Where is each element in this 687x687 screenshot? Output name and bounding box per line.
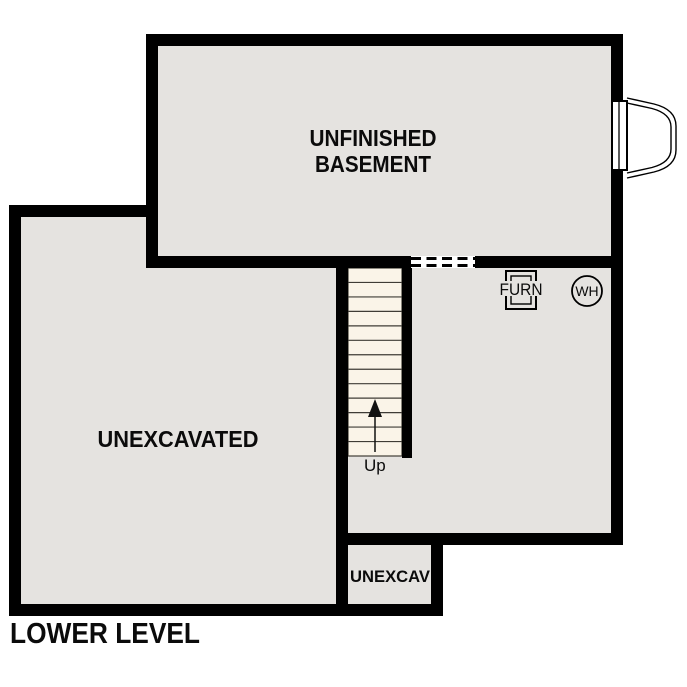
- wall: [9, 205, 21, 616]
- page-title: LOWER LEVEL: [10, 618, 200, 650]
- wall: [146, 34, 158, 268]
- window-well-inner: [627, 103, 671, 173]
- stairs-up-label: Up: [364, 456, 386, 475]
- floor-plan: FURN WH UNFINISHED BASEMENT UNEXCAVATED …: [0, 0, 687, 687]
- wall: [402, 268, 412, 458]
- water-heater-icon: WH: [572, 276, 602, 306]
- wall: [431, 533, 443, 616]
- window-well: [627, 98, 676, 178]
- overhead-opening-dashed: [411, 256, 475, 268]
- room-label-unexcav-small: UNEXCAV: [350, 567, 431, 586]
- egress-window: [612, 101, 627, 170]
- window-well-outer: [627, 98, 676, 178]
- floor-plan-page: FURN WH UNFINISHED BASEMENT UNEXCAVATED …: [0, 0, 687, 687]
- room-label-basement-line2: BASEMENT: [315, 151, 431, 177]
- wall: [146, 256, 411, 268]
- wall: [336, 256, 348, 616]
- wall: [336, 533, 623, 545]
- wall: [9, 205, 158, 217]
- furnace-label: FURN: [500, 280, 543, 299]
- wall: [475, 256, 623, 268]
- wall: [9, 604, 443, 616]
- water-heater-label: WH: [575, 283, 598, 299]
- room-unexcavated-floor: [21, 217, 336, 604]
- wall: [146, 34, 623, 46]
- room-label-unexcavated: UNEXCAVATED: [98, 426, 259, 452]
- room-label-basement-line1: UNFINISHED: [310, 125, 437, 151]
